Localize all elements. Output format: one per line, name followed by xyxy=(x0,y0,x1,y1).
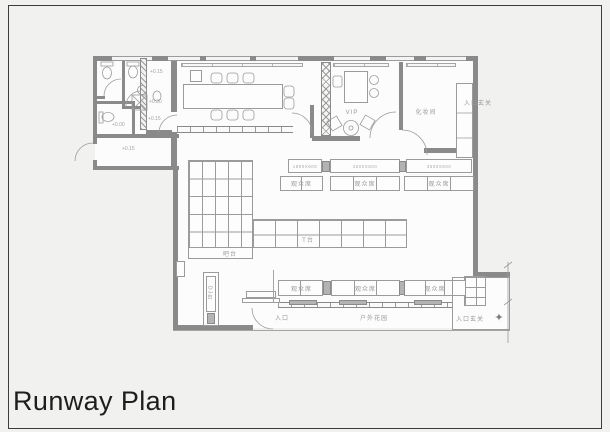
vip-side-chair xyxy=(333,76,342,87)
chair xyxy=(284,86,294,97)
vip-stool xyxy=(360,115,375,130)
chair xyxy=(284,98,294,109)
sink-fixture xyxy=(138,86,147,95)
chair xyxy=(227,73,238,83)
toilet-fixture xyxy=(102,113,114,122)
chair xyxy=(211,110,222,120)
toilet-fixture xyxy=(129,66,138,78)
elevation-marker: +0.15 xyxy=(150,69,163,75)
elevation-marker: +0.15 xyxy=(122,146,135,152)
toilet-tank xyxy=(101,62,113,66)
door-arc-makeup xyxy=(402,130,427,155)
page: VIP 化妆间 入口玄关 入口玄关 观众席 观众席 观众席 观众席 观众席 观众… xyxy=(0,0,610,432)
outdoor-garden-label: 户外花园 xyxy=(348,312,400,322)
shaft-x xyxy=(132,95,147,110)
door-arc xyxy=(292,113,312,133)
door-arc-exterior xyxy=(75,143,93,161)
entrance-label: 入口 xyxy=(268,312,296,322)
vip-desk-chair xyxy=(370,76,379,85)
runway-label: T台 xyxy=(290,233,326,246)
room-label-vip: VIP xyxy=(336,108,368,117)
plan-title: Runway Plan xyxy=(13,386,177,417)
audience-seat-label: 观众席 xyxy=(406,281,464,295)
audience-seat-label: 观众席 xyxy=(333,177,397,190)
vip-round-table-center xyxy=(349,126,353,130)
door-arc xyxy=(104,79,121,96)
wardrobe-dividers xyxy=(456,113,473,138)
chair xyxy=(243,110,254,120)
bar-label: 吧台 xyxy=(210,247,250,259)
bench-dimension: 3600X600 xyxy=(406,160,472,172)
vip-desk-chair xyxy=(370,89,379,98)
audience-seat-label: 观众席 xyxy=(281,177,322,190)
toilet-fixture xyxy=(103,67,112,79)
elevation-marker: +0.30 xyxy=(149,99,162,105)
door-arc-vip xyxy=(370,112,396,138)
vip-stool xyxy=(327,116,342,131)
audience-seat-label: 观众席 xyxy=(333,281,398,295)
plan-details xyxy=(0,0,610,432)
room-label-foyer-bottom: 入口玄关 xyxy=(450,313,490,323)
audience-seat-label: 观众席 xyxy=(280,281,323,295)
elevation-marker: +0.15 xyxy=(148,116,161,122)
chair xyxy=(211,73,222,83)
audience-seat-label: 观众席 xyxy=(407,177,471,190)
elevation-marker: +0.00 xyxy=(112,122,125,128)
bench-dimension: 3600X600 xyxy=(330,160,400,172)
floor-plan: VIP 化妆间 入口玄关 入口玄关 观众席 观众席 观众席 观众席 观众席 观众… xyxy=(0,0,610,432)
door-arc xyxy=(159,115,177,133)
dimension-line xyxy=(504,262,512,343)
bench-dimension: 1800X600 xyxy=(288,160,322,172)
dj-booth-label: DJ台 xyxy=(203,277,217,309)
room-label-makeup: 化妆间 xyxy=(404,106,448,116)
toilet-tank xyxy=(127,62,139,66)
chair xyxy=(227,110,238,120)
north-arrow-icon: ✦ xyxy=(491,311,507,327)
chair xyxy=(243,73,254,83)
vip-round-table xyxy=(344,121,359,136)
room-label-foyer-right: 入口玄关 xyxy=(456,98,500,107)
